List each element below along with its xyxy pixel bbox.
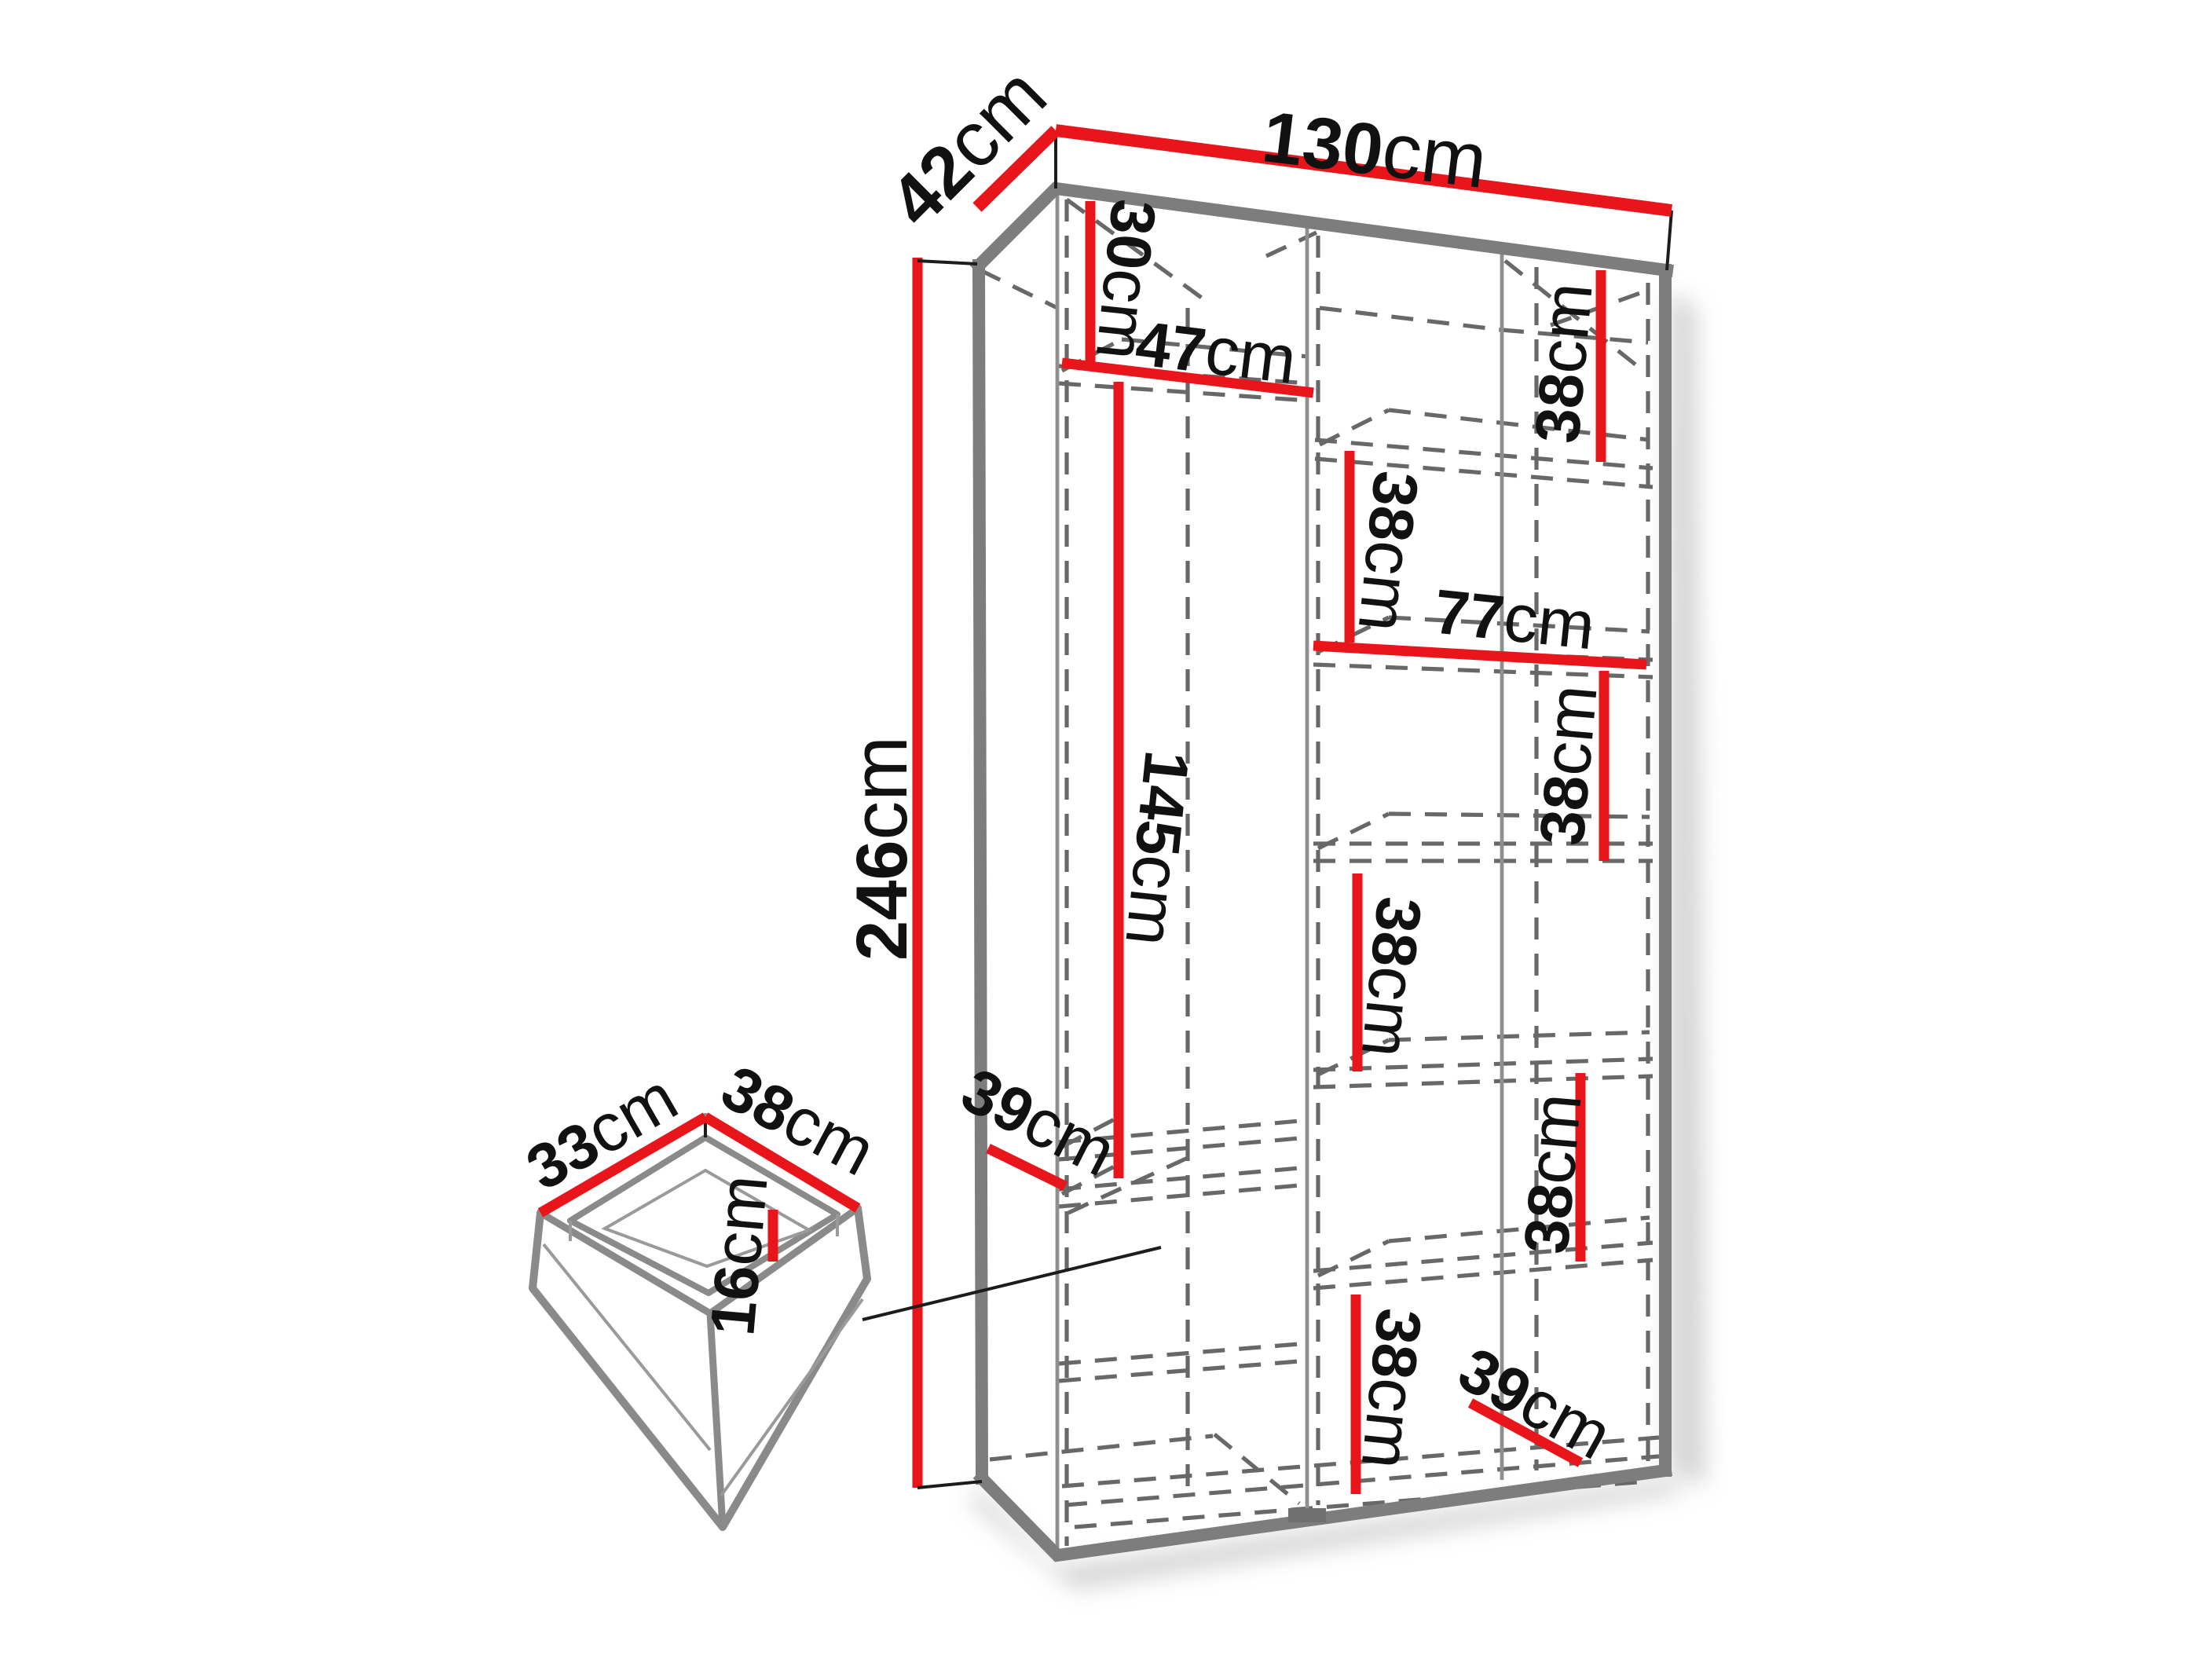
drawer-leader-line	[862, 1247, 1161, 1320]
dim-height-tick-bottom	[917, 1481, 982, 1488]
dim-shelf-a-label: 38cm	[1518, 280, 1606, 446]
diagram-canvas: 130cm 42cm 246cm 30cm 47cm 145cm 39cm 77…	[0, 0, 2212, 1659]
wardrobe-dimensions-diagram: 130cm 42cm 246cm 30cm 47cm 145cm 39cm 77…	[0, 0, 2212, 1659]
dim-height-label: 246cm	[837, 736, 924, 961]
dim-shelf-e-label: 38cm	[1507, 1090, 1595, 1257]
dim-hanging-label: 145cm	[1111, 747, 1206, 949]
dim-shelf-c-label: 38cm	[1522, 682, 1611, 848]
plinth-foot	[1288, 1508, 1326, 1522]
dim-left-width-label: 47cm	[1132, 304, 1300, 398]
dim-height-tick-top	[917, 261, 977, 264]
left-front-edge	[979, 266, 982, 1478]
dim-shelf-b-label: 38cm	[1344, 468, 1436, 635]
dim-drawer-height-label: 16cm	[693, 1172, 782, 1339]
